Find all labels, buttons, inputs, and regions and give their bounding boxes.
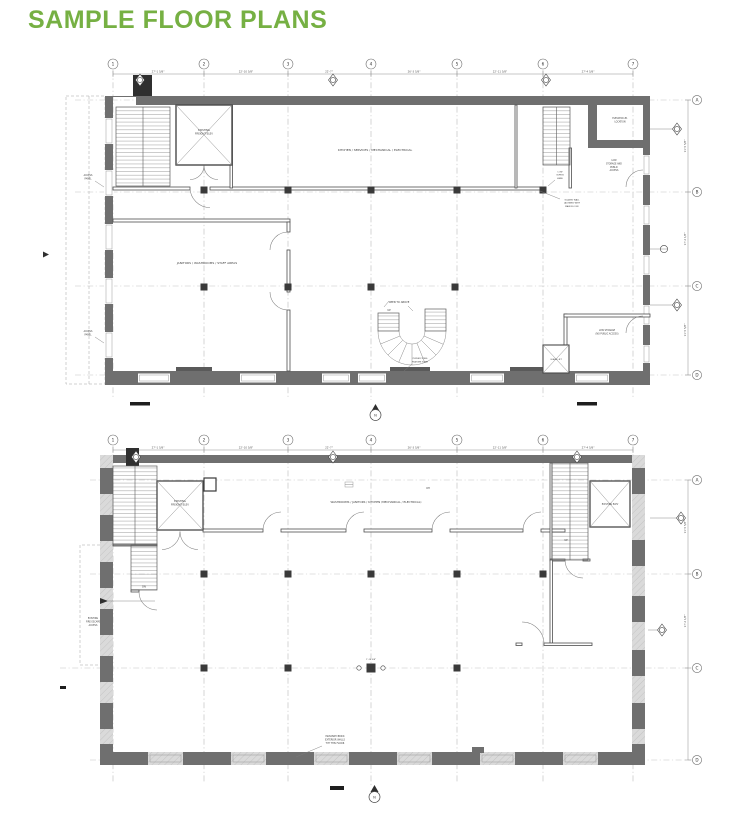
elevator-location-label: ELEVATOR #1 LOCATION [612, 117, 628, 123]
section-marker-icon [330, 454, 335, 459]
north-label: N [373, 796, 376, 800]
freight-elev-label: FREIGHT ELEV [171, 503, 189, 507]
freight-elevator: EXISTING FREIGHT ELEV [176, 105, 232, 180]
section-marker-icon [543, 77, 548, 82]
grid-bubble-label: 7 [632, 62, 635, 67]
grid-bubble-label: C [696, 284, 699, 289]
janitors-label: JANITORS / WASHROOMS / STAFF AREAS [176, 261, 237, 265]
dimension-text: 22'-7" [325, 446, 333, 450]
right-dimensions: 11'-5 5/8" 17'-2 1/8" 11'-5 5/8" A B C D [683, 95, 702, 379]
north-arrow-icon: N [369, 785, 380, 803]
dimension-text: 11'-5 5/8" [683, 521, 687, 534]
glass-lift: GLASS LIFT [543, 345, 569, 373]
freight-elev-label: EXISTING [198, 128, 210, 132]
stair-up-label: UP [564, 538, 568, 542]
leader-arrow-icon [43, 252, 49, 258]
grid-bubble-label: 2 [203, 62, 206, 67]
center-column-detail: 1'-10 5/8" [357, 659, 385, 673]
grid-bubble-label: D [695, 373, 698, 378]
svg-text:GLAZED WALL: GLAZED WALL [565, 199, 581, 202]
dimension-text: 22'-10 5/8" [239, 446, 253, 450]
low-storage-public-label: LOW STORAGE AND PUBLIC ACCESS [606, 159, 622, 172]
north-arrow-icon: N [370, 404, 381, 421]
grid-bubble-label: 6 [542, 62, 545, 67]
grid-bubble-label: 3 [287, 438, 290, 443]
svg-text:CUPB'D: CUPB'D [556, 175, 564, 177]
column-dim-text: 1'-10 5/8" [366, 659, 376, 661]
svg-text:LOCATION: LOCATION [614, 120, 625, 123]
dimension-text: 26'-3 5/8" [408, 70, 421, 74]
stair-dn-label: DN [142, 585, 146, 589]
svg-text:TYP THIS FLOOR: TYP THIS FLOOR [326, 742, 345, 745]
shaft-wall [588, 140, 650, 148]
dimension-text: 22'-11 5/8" [493, 446, 507, 450]
property-line [66, 96, 105, 384]
glazed-wall [515, 105, 517, 188]
scale-bar [577, 402, 597, 406]
columns [201, 187, 547, 291]
glazed-wall-note: GLAZED WALL (ALIGNED WITH MAIN FLOOR) [540, 191, 581, 208]
dimension-text: 22'-10 5/8" [239, 70, 253, 74]
dim-tick [60, 686, 66, 689]
grid-bubble-label: B [696, 572, 699, 577]
stair-up-label: UP [387, 308, 391, 312]
dimension-text: 22'-11 5/8" [493, 70, 507, 74]
north-label: N [374, 414, 377, 418]
dimension-text: 11'-5 5/8" [683, 140, 687, 153]
existing-elevator: EXISTING ELEV [590, 481, 630, 527]
grid-bubble-label: 7 [632, 438, 635, 443]
top-dimensions: 27'-1 5/8" 22'-10 5/8" 22'-7" 26'-3 5/8"… [113, 70, 633, 78]
grid-bubble-label: B [696, 190, 699, 195]
grid-bubble-label: 6 [542, 438, 545, 443]
duct-shaft [204, 478, 216, 491]
washrooms-label: WASHROOMS / JANITORS / KITCHEN (MECHANIC… [331, 500, 422, 504]
doors [190, 170, 643, 333]
section-marker-icon [137, 77, 142, 82]
existing-elev-label: EXISTING ELEV [602, 503, 619, 506]
dimension-text: 27'-4 5/8" [582, 446, 595, 450]
grid-bubbles-top: 1 2 3 4 5 6 7 [108, 59, 638, 69]
columns: 1'-10 5/8" [201, 571, 547, 673]
floor-plans-drawing: 27'-1 5/8" 22'-10 5/8" 22'-7" 26'-3 5/8"… [0, 0, 742, 819]
svg-text:(ALIGNED WITH: (ALIGNED WITH [564, 202, 581, 205]
grid-bubble-label: A [696, 98, 699, 103]
freight-elev-label: EXISTING [174, 499, 186, 503]
freight-elevator: EXISTING FREIGHT ELEV [157, 478, 216, 550]
grid-bubble-label: D [695, 758, 698, 763]
dimension-text: 17'-2 1/8" [683, 615, 687, 628]
access-panel-note-2: ACCESS PANEL [84, 330, 104, 343]
grid-bubble-label: 2 [203, 438, 206, 443]
access-panel-note-1: ACCESS PANEL [84, 174, 104, 187]
dimension-text: 27'-1 5/8" [152, 70, 165, 74]
kitchen-label: KITCHEN / SERVICES / MECHANICAL / ELECTR… [338, 148, 413, 152]
dimension-text: 27'-1 5/8" [152, 446, 165, 450]
stair-northeast [543, 107, 570, 165]
upper-floor-plan: 27'-1 5/8" 22'-10 5/8" 22'-7" 26'-3 5/8"… [43, 59, 702, 421]
lower-floor-plan: 27'-1 5/8" 22'-10 5/8" 22'-7" 26'-3 5/8"… [60, 435, 702, 803]
grid-bubble-label: 4 [370, 62, 373, 67]
glass-lift-label: GLASS LIFT [550, 358, 562, 361]
dimension-text: 11'-5 5/8" [683, 324, 687, 337]
stair-northwest: DN [113, 466, 157, 610]
property-line [80, 545, 100, 665]
section-marker-icon [133, 454, 138, 459]
grid-bubbles-top: 1 2 3 4 5 6 7 [108, 435, 638, 445]
grid-bubble-label: 1 [112, 62, 115, 67]
stair-northeast: UP [522, 463, 588, 644]
section-marker-icon [574, 454, 579, 459]
grid-bubble-label: 5 [456, 62, 459, 67]
open-to-above-label: OPEN TO ABOVE [389, 300, 410, 304]
section-marker-icon [330, 77, 335, 82]
freight-elev-label: FREIGHT ELEV [195, 132, 213, 136]
svg-text:PANEL: PANEL [85, 177, 93, 180]
grid-bubble-label: 3 [287, 62, 290, 67]
svg-text:ACCESS: ACCESS [89, 624, 98, 627]
grid-bubble-label: A [696, 478, 699, 483]
shaft-wall [588, 105, 597, 142]
right-dimensions: 11'-5 5/8" 17'-2 1/8" A B C D [683, 475, 702, 764]
svg-text:MAIN FLOOR): MAIN FLOOR) [565, 205, 579, 208]
stair-note: CURVED STEEL [412, 358, 429, 360]
grid-bubble-label: 1 [112, 438, 115, 443]
grid-bubble-label: 4 [370, 438, 373, 443]
svg-text:(NO PUBLIC ACCESS): (NO PUBLIC ACCESS) [596, 332, 619, 335]
svg-text:ACCESS: ACCESS [610, 169, 619, 172]
stair-northwest [116, 107, 170, 186]
section-marker-icon [674, 126, 679, 131]
fire-escape-note: EXISTING FIRE ESCAPE ACCESS [86, 598, 155, 627]
section-marker-icon [674, 302, 679, 307]
oh-label: OH [426, 487, 430, 490]
wall-bump [472, 747, 484, 753]
grid-bubble-label: 5 [456, 438, 459, 443]
stair-note: FEATURE STAIR [412, 360, 428, 363]
svg-text:HERE: HERE [557, 178, 563, 180]
section-marker-icon [678, 515, 683, 520]
ceiling-fixture [345, 482, 353, 487]
dimension-text: 26'-3 5/8" [408, 446, 421, 450]
dimension-text: 22'-7" [325, 70, 333, 74]
low-cupboard-note: LOW CUPB'D HERE [548, 172, 564, 187]
section-marker-icon [659, 627, 664, 632]
grid-bubble-label: C [696, 666, 699, 671]
scale-bar [330, 786, 344, 790]
svg-text:PANEL: PANEL [85, 333, 93, 336]
dimension-text: 17'-2 1/8" [683, 233, 687, 246]
doors [263, 512, 541, 530]
low-storage-no-public-label: LOW STORAGE (NO PUBLIC ACCESS) [596, 329, 619, 335]
svg-text:LOW: LOW [558, 172, 563, 174]
document-page: SAMPLE FLOOR PLANS [0, 0, 742, 819]
top-dimensions: 27'-1 5/8" 22'-10 5/8" 22'-7" 26'-3 5/8"… [113, 446, 633, 454]
scale-bar [130, 402, 150, 406]
dimension-text: 27'-4 5/8" [582, 70, 595, 74]
curved-feature-stair: UP CURVED STEEL FEATURE STAIR [378, 308, 446, 371]
